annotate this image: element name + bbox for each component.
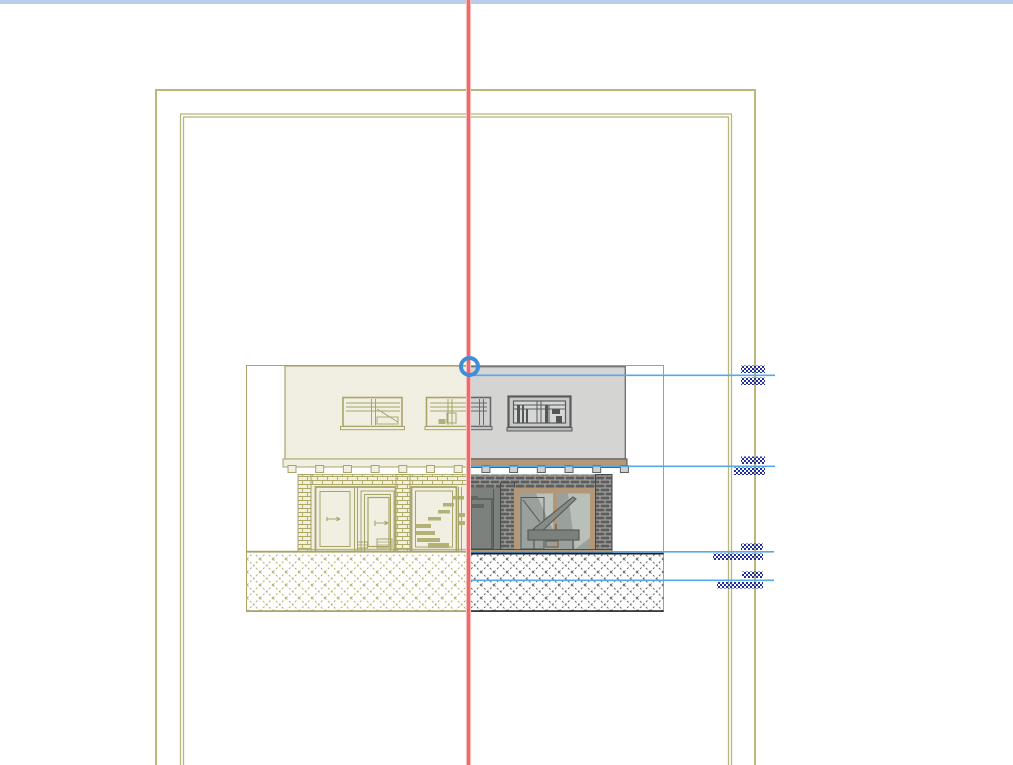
new-brick-pier-mid [501, 483, 515, 550]
level-marker-roof-selected-label-value[interactable] [741, 378, 765, 386]
comparison-slider-line[interactable] [466, 0, 471, 765]
old-brick-pier-left [298, 475, 311, 553]
comparison-slider-handle[interactable] [459, 356, 480, 377]
rafter-tail [454, 466, 462, 473]
new-ground-stair-glass [467, 488, 501, 550]
rafter-tail [399, 466, 407, 473]
ground-hatch-old [246, 554, 467, 611]
new-ground-glazed-unit [514, 488, 596, 550]
level-marker-eaves-selected-label-name[interactable] [741, 457, 765, 465]
elevation-drawing [0, 0, 1013, 765]
level-marker-footing-selected-label-name[interactable] [742, 572, 763, 579]
ground-hatch-new [467, 554, 664, 611]
rafter-tail [316, 466, 324, 473]
new-brick-pier-right [596, 475, 613, 550]
level-marker-footing-selected-label-value[interactable] [717, 582, 763, 589]
rafter-tail [427, 466, 435, 473]
rafter-tail [371, 466, 379, 473]
old-version-elevation [246, 366, 490, 611]
rafter-tail [288, 466, 296, 473]
new-upper-window-3 [507, 397, 572, 432]
old-brick-pier-mid [396, 475, 410, 553]
old-upper-window-1 [341, 398, 405, 430]
drawing-canvas[interactable] [0, 0, 1013, 765]
level-marker-ground-floor-selected-label-value[interactable] [713, 554, 763, 561]
level-marker-ground-floor-selected-label-name[interactable] [741, 544, 763, 551]
level-marker-eaves-selected-label-value[interactable] [734, 468, 765, 476]
new-version-elevation [465, 366, 664, 611]
level-marker-roof-selected-label-name[interactable] [741, 366, 765, 374]
rafter-tail [343, 466, 351, 473]
